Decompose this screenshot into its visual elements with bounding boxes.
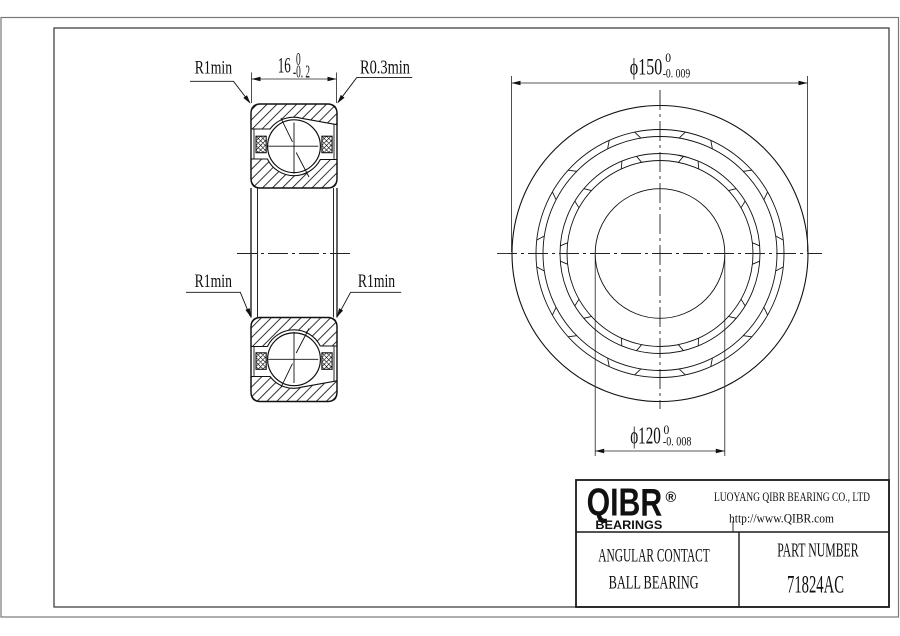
svg-text:BALL BEARING: BALL BEARING	[609, 572, 699, 593]
svg-text:0: 0	[665, 50, 671, 65]
svg-text:R1min: R1min	[358, 271, 396, 292]
svg-text:R0.3min: R0.3min	[360, 57, 410, 79]
svg-text:R1min: R1min	[195, 271, 233, 292]
svg-text:71824AC: 71824AC	[787, 569, 844, 598]
svg-text:LUOYANG QIBR BEARING CO., LTD: LUOYANG QIBR BEARING CO., LTD	[714, 489, 870, 504]
svg-text:-0. 008: -0. 008	[663, 433, 692, 448]
svg-text:http://www.QIBR.com: http://www.QIBR.com	[729, 511, 834, 526]
svg-text:-0. 2: -0. 2	[293, 61, 310, 81]
svg-text:ϕ150: ϕ150	[630, 55, 662, 81]
svg-text:®: ®	[666, 490, 677, 506]
svg-text:ϕ120: ϕ120	[630, 423, 661, 449]
svg-text:PART NUMBER: PART NUMBER	[777, 540, 859, 562]
svg-text:16: 16	[278, 52, 291, 77]
svg-text:-0. 009: -0. 009	[663, 65, 691, 80]
svg-text:R1min: R1min	[195, 58, 233, 79]
svg-text:ANGULAR CONTACT: ANGULAR CONTACT	[598, 546, 710, 567]
svg-text:BEARINGS: BEARINGS	[595, 518, 662, 532]
